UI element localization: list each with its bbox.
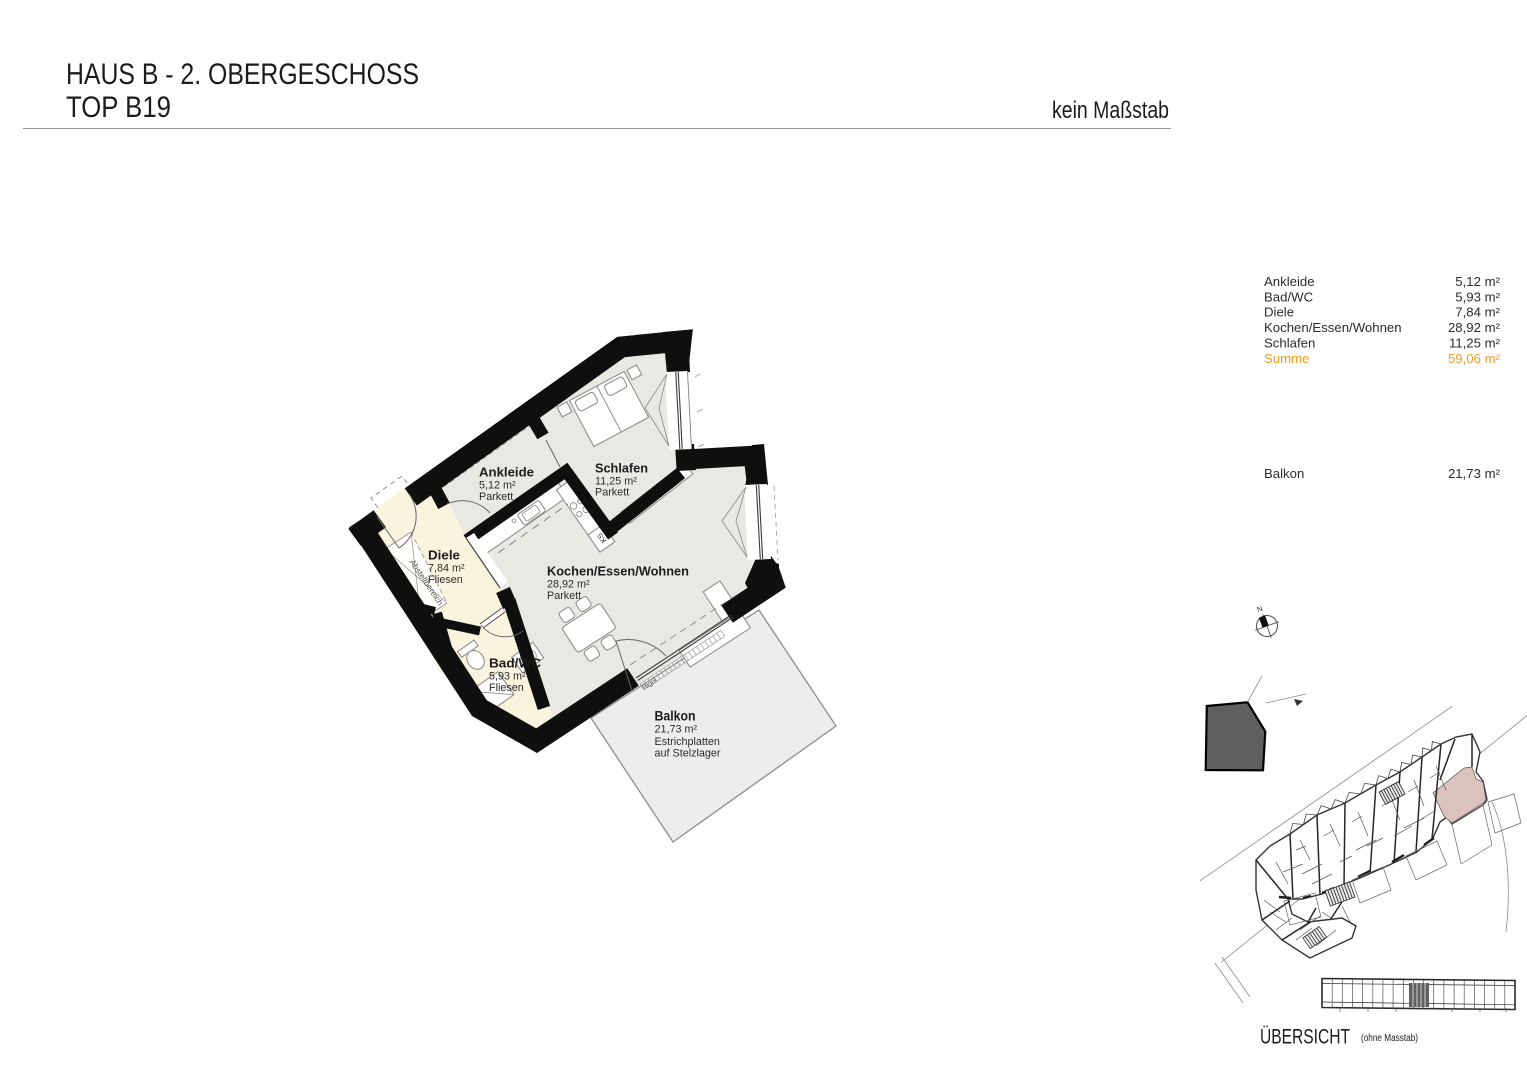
svg-text:TOP B19: TOP B19 <box>66 91 171 124</box>
svg-text:7,84 m²: 7,84 m² <box>1455 305 1500 320</box>
svg-text:7,84 m²: 7,84 m² <box>428 562 465 574</box>
svg-text:59,06 m²: 59,06 m² <box>1448 351 1501 366</box>
svg-text:Kochen/Essen/Wohnen: Kochen/Essen/Wohnen <box>547 564 689 579</box>
svg-text:Schlafen: Schlafen <box>1264 336 1315 351</box>
svg-text:5,93 m²: 5,93 m² <box>1455 289 1500 304</box>
svg-text:Parkett: Parkett <box>547 590 581 602</box>
svg-text:(ohne Masstab): (ohne Masstab) <box>1361 1033 1418 1044</box>
svg-text:Parkett: Parkett <box>595 487 629 499</box>
svg-text:Ankleide: Ankleide <box>1264 274 1315 289</box>
svg-text:Balkon: Balkon <box>1264 466 1304 481</box>
svg-text:Parkett: Parkett <box>479 491 513 503</box>
svg-text:11,25 m²: 11,25 m² <box>1449 336 1501 351</box>
svg-text:Fliesen: Fliesen <box>489 682 524 694</box>
svg-text:Ankleide: Ankleide <box>479 465 534 480</box>
svg-text:Diele: Diele <box>428 548 460 563</box>
svg-text:5,93 m²: 5,93 m² <box>489 670 526 682</box>
svg-text:5,12 m²: 5,12 m² <box>1455 274 1500 289</box>
svg-text:ÜBERSICHT: ÜBERSICHT <box>1260 1026 1350 1049</box>
svg-text:21,73 m²: 21,73 m² <box>655 724 698 736</box>
svg-text:Summe: Summe <box>1264 351 1309 366</box>
svg-text:28,92 m²: 28,92 m² <box>1448 320 1501 335</box>
svg-text:21,73 m²: 21,73 m² <box>1448 466 1501 481</box>
svg-text:Schlafen: Schlafen <box>595 460 648 475</box>
svg-text:HAUS B - 2. OBERGESCHOSS: HAUS B - 2. OBERGESCHOSS <box>66 58 419 91</box>
svg-text:Bad/WC: Bad/WC <box>1264 289 1314 304</box>
svg-text:11,25 m²: 11,25 m² <box>595 475 637 487</box>
svg-text:auf Stelzlager: auf Stelzlager <box>655 748 721 760</box>
svg-text:28,92 m²: 28,92 m² <box>547 578 590 590</box>
svg-text:Diele: Diele <box>1264 305 1294 320</box>
svg-text:Estrichplatten: Estrichplatten <box>655 736 720 748</box>
svg-text:Balkon: Balkon <box>655 708 696 724</box>
svg-text:Bad/WC: Bad/WC <box>489 656 541 671</box>
svg-text:kein Maßstab: kein Maßstab <box>1052 97 1169 124</box>
svg-text:Kochen/Essen/Wohnen: Kochen/Essen/Wohnen <box>1264 320 1402 335</box>
svg-text:5,12 m²: 5,12 m² <box>479 479 516 491</box>
svg-text:Fliesen: Fliesen <box>428 574 463 586</box>
